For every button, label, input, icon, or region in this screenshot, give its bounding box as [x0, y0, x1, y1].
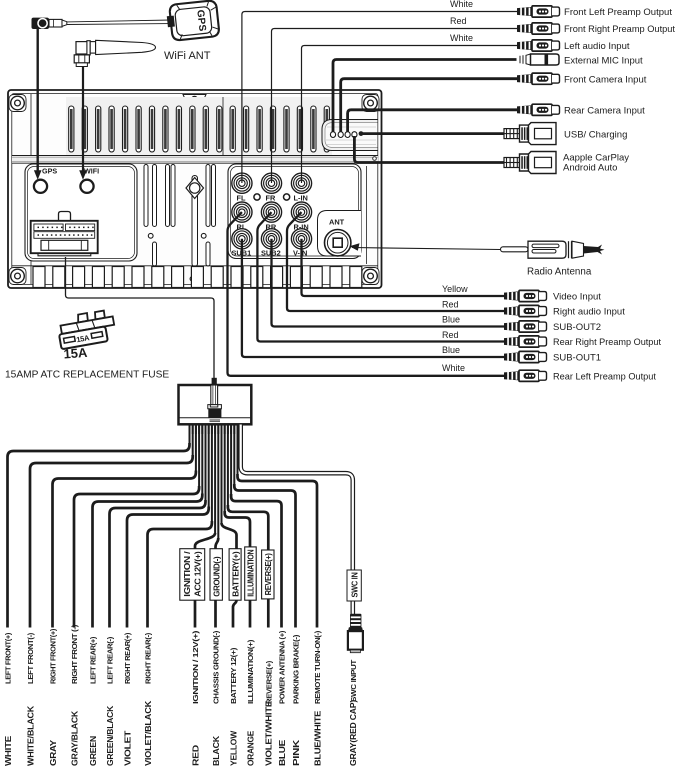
svg-text:Blue: Blue [442, 315, 460, 325]
svg-text:GROUND(-): GROUND(-) [212, 556, 221, 597]
svg-text:IGNITION / 12V(+): IGNITION / 12V(+) [191, 630, 200, 704]
svg-text:GRAY/BLACK: GRAY/BLACK [69, 710, 79, 766]
svg-text:Front Left Preamp Output: Front Left Preamp Output [564, 7, 672, 18]
svg-text:BLUE: BLUE [277, 739, 287, 766]
svg-text:POWER ANTENNA (+): POWER ANTENNA (+) [278, 630, 287, 704]
svg-text:WHITE: WHITE [3, 735, 13, 766]
svg-text:BLACK: BLACK [211, 735, 221, 766]
svg-text:WiFi ANT: WiFi ANT [164, 50, 211, 62]
svg-text:CHASSIS GROUND(-): CHASSIS GROUND(-) [212, 630, 221, 704]
svg-text:L-IN: L-IN [294, 194, 308, 203]
svg-text:REMOTE TURN-ON(-): REMOTE TURN-ON(-) [313, 630, 322, 704]
svg-text:BATTERY 12(+): BATTERY 12(+) [229, 647, 238, 704]
svg-text:RIGHT REAR(+): RIGHT REAR(+) [123, 632, 132, 684]
svg-text:REVERSE(+): REVERSE(+) [265, 660, 274, 704]
svg-text:GREEN: GREEN [88, 736, 98, 766]
svg-text:LEFT REAR(+): LEFT REAR(+) [89, 636, 98, 684]
svg-text:External MIC Input: External MIC Input [564, 56, 643, 67]
svg-text:Android Auto: Android Auto [563, 163, 617, 174]
svg-text:GREEN/BLACK: GREEN/BLACK [105, 705, 115, 766]
svg-text:15A: 15A [63, 345, 88, 362]
svg-text:Red: Red [442, 300, 459, 310]
svg-text:Rear Left Preamp Output: Rear Left Preamp Output [553, 372, 656, 383]
svg-text:VIOLET: VIOLET [122, 730, 132, 766]
svg-text:ACC 12V(+): ACC 12V(+) [194, 551, 203, 597]
svg-text:FR: FR [266, 194, 277, 203]
svg-text:VIOLET/BLACK: VIOLET/BLACK [143, 700, 153, 766]
svg-text:Front Camera Input: Front Camera Input [564, 75, 647, 86]
svg-text:VIOLET/WHITE: VIOLET/WHITE [264, 700, 274, 766]
svg-text:PINK: PINK [291, 739, 301, 766]
svg-text:15AMP ATC REPLACEMENT FUSE: 15AMP ATC REPLACEMENT FUSE [5, 370, 169, 381]
svg-text:RIGHT REAR(-): RIGHT REAR(-) [144, 632, 153, 684]
svg-text:RIGHT FRONT (-): RIGHT FRONT (-) [70, 624, 79, 684]
svg-text:FL: FL [237, 194, 247, 203]
svg-text:White: White [450, 33, 473, 43]
svg-text:Yellow: Yellow [442, 284, 468, 294]
svg-text:LEFT REAR(-): LEFT REAR(-) [106, 636, 115, 684]
svg-text:ORANGE: ORANGE [245, 731, 255, 766]
svg-text:SUB-OUT2: SUB-OUT2 [553, 322, 601, 333]
svg-text:SWC INPUT: SWC INPUT [349, 659, 358, 702]
svg-text:SUB-OUT1: SUB-OUT1 [553, 353, 601, 364]
svg-text:White: White [450, 0, 473, 9]
svg-text:Red: Red [442, 330, 459, 340]
svg-text:IGNITION /: IGNITION / [183, 550, 192, 596]
svg-text:Video Input: Video Input [553, 292, 601, 303]
svg-text:Rear Right Preamp Output: Rear Right Preamp Output [553, 337, 661, 348]
svg-text:LEFT FRONT(+): LEFT FRONT(+) [4, 632, 13, 684]
svg-text:GPS: GPS [194, 9, 207, 32]
svg-text:Left audio Input: Left audio Input [564, 41, 630, 52]
svg-text:V-IN: V-IN [293, 249, 307, 258]
svg-text:Front Right Preamp Output: Front Right Preamp Output [564, 24, 675, 35]
svg-text:LEFT FRONT(-): LEFT FRONT(-) [26, 632, 35, 684]
svg-text:ILLUMINATION: ILLUMINATION [247, 549, 256, 596]
svg-text:WHITE/BLACK: WHITE/BLACK [25, 705, 35, 766]
svg-text:Red: Red [450, 16, 467, 26]
svg-text:RED: RED [190, 745, 200, 766]
svg-text:Blue: Blue [442, 345, 460, 355]
svg-text:YELLOW: YELLOW [228, 730, 238, 766]
svg-text:ANT: ANT [329, 218, 345, 227]
svg-text:BATTERY(+): BATTERY(+) [231, 551, 240, 597]
svg-text:White: White [442, 363, 465, 373]
svg-text:GRAY: GRAY [48, 739, 58, 766]
svg-text:SWC IN: SWC IN [350, 572, 359, 597]
svg-text:RIGHT FRONT(+): RIGHT FRONT(+) [49, 628, 58, 684]
svg-text:Rear Camera Input: Rear Camera Input [564, 106, 645, 117]
svg-text:REVERSE(+): REVERSE(+) [264, 553, 273, 596]
svg-text:PARKING BRAKE(-): PARKING BRAKE(-) [292, 634, 301, 704]
svg-text:Right audio Input: Right audio Input [553, 307, 625, 318]
svg-text:USB/ Charging: USB/ Charging [564, 130, 627, 141]
svg-text:GRAY(RED CAP): GRAY(RED CAP) [348, 700, 358, 766]
svg-text:GPS: GPS [42, 167, 57, 176]
svg-text:ILLUMINATION(+): ILLUMINATION(+) [246, 639, 255, 704]
svg-text:BLUE/WHITE: BLUE/WHITE [312, 710, 322, 766]
svg-text:Radio Antenna: Radio Antenna [527, 267, 592, 278]
